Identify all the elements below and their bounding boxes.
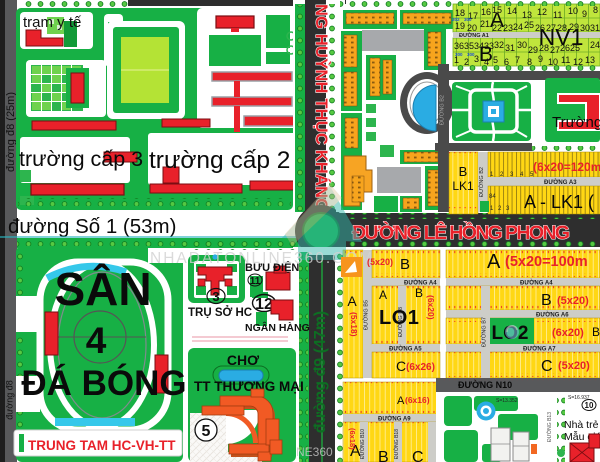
svg-text:(6x26): (6x26)	[406, 362, 435, 373]
svg-text:TRỤ SỞ HC: TRỤ SỞ HC	[188, 306, 252, 319]
svg-text:ĐƯỜNG A9: ĐƯỜNG A9	[378, 415, 411, 423]
svg-text:A: A	[347, 293, 357, 309]
svg-text:(5x20): (5x20)	[558, 360, 590, 372]
svg-text:NHADATONLINE360.COM: NHADATONLINE360.COM	[150, 250, 374, 267]
svg-text:29: 29	[528, 45, 538, 55]
svg-text:300: 300	[464, 17, 472, 22]
svg-text:7: 7	[515, 55, 520, 65]
svg-text:32: 32	[494, 40, 504, 50]
svg-text:ĐƯỜNG A7: ĐƯỜNG A7	[523, 345, 556, 353]
svg-text:28: 28	[539, 43, 549, 53]
svg-text:(6x20): (6x20)	[552, 327, 584, 339]
svg-text:10: 10	[585, 401, 594, 410]
svg-text:C: C	[396, 358, 406, 374]
svg-text:trường cấp 2: trường cấp 2	[149, 147, 290, 174]
svg-text:ĐƯỜNG LÊ HỒNG PHONG: ĐƯỜNG LÊ HỒNG PHONG	[352, 220, 570, 244]
svg-text:trường cấp 3: trường cấp 3	[19, 147, 143, 171]
svg-text:11: 11	[553, 10, 562, 20]
svg-text:25: 25	[524, 20, 534, 30]
svg-text:12: 12	[537, 7, 547, 17]
svg-text:ĐƯỜNG A5: ĐƯỜNG A5	[389, 345, 422, 353]
svg-text:TRUNG TAM HC-VH-TT: TRUNG TAM HC-VH-TT	[28, 438, 176, 453]
svg-text:A: A	[379, 288, 387, 302]
svg-text:ĐƯỜNG B2: ĐƯỜNG B2	[478, 167, 485, 197]
svg-text:24: 24	[590, 40, 600, 50]
svg-text:ĐƯỜNG A4: ĐƯỜNG A4	[520, 279, 553, 287]
svg-text:9: 9	[582, 9, 587, 19]
svg-text:4: 4	[86, 320, 107, 361]
svg-text:đường Số 1 (53m): đường Số 1 (53m)	[8, 215, 176, 238]
svg-text:B: B	[378, 449, 389, 462]
svg-text:33: 33	[484, 41, 494, 51]
svg-text:B: B	[400, 256, 410, 273]
svg-text:ĐƯỜNG B5: ĐƯỜNG B5	[363, 300, 370, 330]
svg-text:C: C	[412, 449, 424, 462]
svg-text:21: 21	[480, 19, 490, 29]
svg-text:3: 3	[474, 54, 479, 64]
svg-text:A - LK1 (: A - LK1 (	[524, 192, 594, 212]
svg-text:8: 8	[593, 5, 598, 15]
svg-text:(5x20=100m: (5x20=100m	[505, 254, 588, 270]
svg-text:(5x18): (5x18)	[349, 312, 359, 337]
svg-text:15: 15	[492, 5, 502, 15]
svg-text:A: A	[397, 395, 405, 407]
svg-text:(6x20): (6x20)	[426, 295, 436, 320]
svg-text:ĐƯỜNG A3: ĐƯỜNG A3	[544, 178, 577, 186]
svg-text:27: 27	[546, 23, 556, 33]
svg-text:10: 10	[568, 6, 578, 16]
svg-text:S=13.352: S=13.352	[496, 398, 518, 404]
svg-text:23: 23	[503, 23, 513, 33]
svg-text:14: 14	[507, 6, 517, 16]
svg-text:3: 3	[212, 289, 219, 304]
svg-text:11: 11	[250, 276, 261, 287]
svg-text:ĐƯỜNG B7: ĐƯỜNG B7	[481, 317, 488, 347]
svg-text:22: 22	[492, 23, 502, 33]
svg-text:ĐƯỜNG A6: ĐƯỜNG A6	[536, 311, 569, 319]
svg-text:300: 300	[455, 52, 463, 57]
svg-text:9: 9	[538, 54, 543, 64]
svg-text:SÂN: SÂN	[54, 263, 151, 315]
svg-text:31: 31	[505, 43, 515, 53]
svg-text:(6x16): (6x16)	[405, 395, 430, 405]
svg-text:26: 26	[560, 43, 570, 53]
svg-text:19: 19	[455, 21, 465, 31]
svg-text:31: 31	[590, 23, 600, 33]
svg-text:NE360: NE360	[296, 445, 333, 459]
svg-text:ĐƯỜNG B2: ĐƯỜNG B2	[439, 95, 446, 125]
svg-text:Trường: Trường	[552, 114, 600, 131]
svg-text:30: 30	[517, 40, 527, 50]
svg-text:LK1: LK1	[452, 179, 474, 193]
svg-text:(6x18): (6x18)	[348, 428, 357, 450]
svg-text:11: 11	[561, 55, 570, 65]
svg-text:25: 25	[570, 43, 580, 53]
svg-text:12: 12	[255, 296, 273, 313]
svg-text:29: 29	[569, 22, 579, 32]
svg-text:LO1: LO1	[379, 307, 419, 329]
svg-text:(6x20=120m: (6x20=120m	[533, 160, 600, 174]
svg-text:B: B	[459, 164, 468, 179]
svg-text:26: 26	[535, 23, 545, 33]
svg-text:13: 13	[585, 55, 595, 65]
svg-text:24: 24	[513, 22, 523, 32]
svg-text:ĐƯỜNG B18: ĐƯỜNG B18	[393, 429, 400, 459]
svg-text:5: 5	[493, 55, 498, 65]
svg-text:20: 20	[467, 23, 477, 33]
svg-text:đường đ8 (25m): đường đ8 (25m)	[5, 92, 17, 172]
svg-text:(5x20): (5x20)	[557, 295, 589, 307]
svg-text:B: B	[592, 325, 600, 339]
svg-text:B: B	[541, 292, 552, 309]
svg-text:30: 30	[580, 23, 590, 33]
svg-text:Nhà trẻ: Nhà trẻ	[564, 419, 599, 431]
svg-text:5: 5	[202, 423, 211, 440]
svg-text:28: 28	[557, 23, 567, 33]
svg-text:35: 35	[464, 41, 474, 51]
svg-text:C: C	[541, 358, 553, 375]
svg-text:13: 13	[522, 10, 532, 20]
svg-text:NGÂN HÀNG: NGÂN HÀNG	[245, 321, 310, 334]
svg-text:202: 202	[452, 17, 460, 22]
svg-text:300: 300	[467, 52, 475, 57]
svg-text:TT THƯƠNG MẠI: TT THƯƠNG MẠI	[194, 379, 304, 394]
svg-text:34: 34	[474, 41, 484, 51]
svg-text:27: 27	[550, 45, 560, 55]
svg-text:36: 36	[454, 41, 464, 51]
svg-text:ĐÁ BÓNG: ĐÁ BÓNG	[21, 363, 186, 403]
svg-text:A: A	[487, 251, 501, 273]
svg-text:16: 16	[481, 7, 491, 17]
svg-text:đường đ9 (47m): đường đ9 (47m)	[312, 311, 329, 434]
svg-text:đường đ8: đường đ8	[4, 380, 14, 419]
svg-text:trạm y tế: trạm y tế	[23, 14, 82, 31]
svg-text:B: B	[415, 286, 423, 300]
svg-text:ĐƯỜNG B13: ĐƯỜNG B13	[546, 412, 553, 442]
svg-text:NG HUỲNH THỤC KHÁNG: NG HUỲNH THỤC KHÁNG	[312, 4, 331, 211]
svg-text:84: 84	[489, 194, 496, 200]
